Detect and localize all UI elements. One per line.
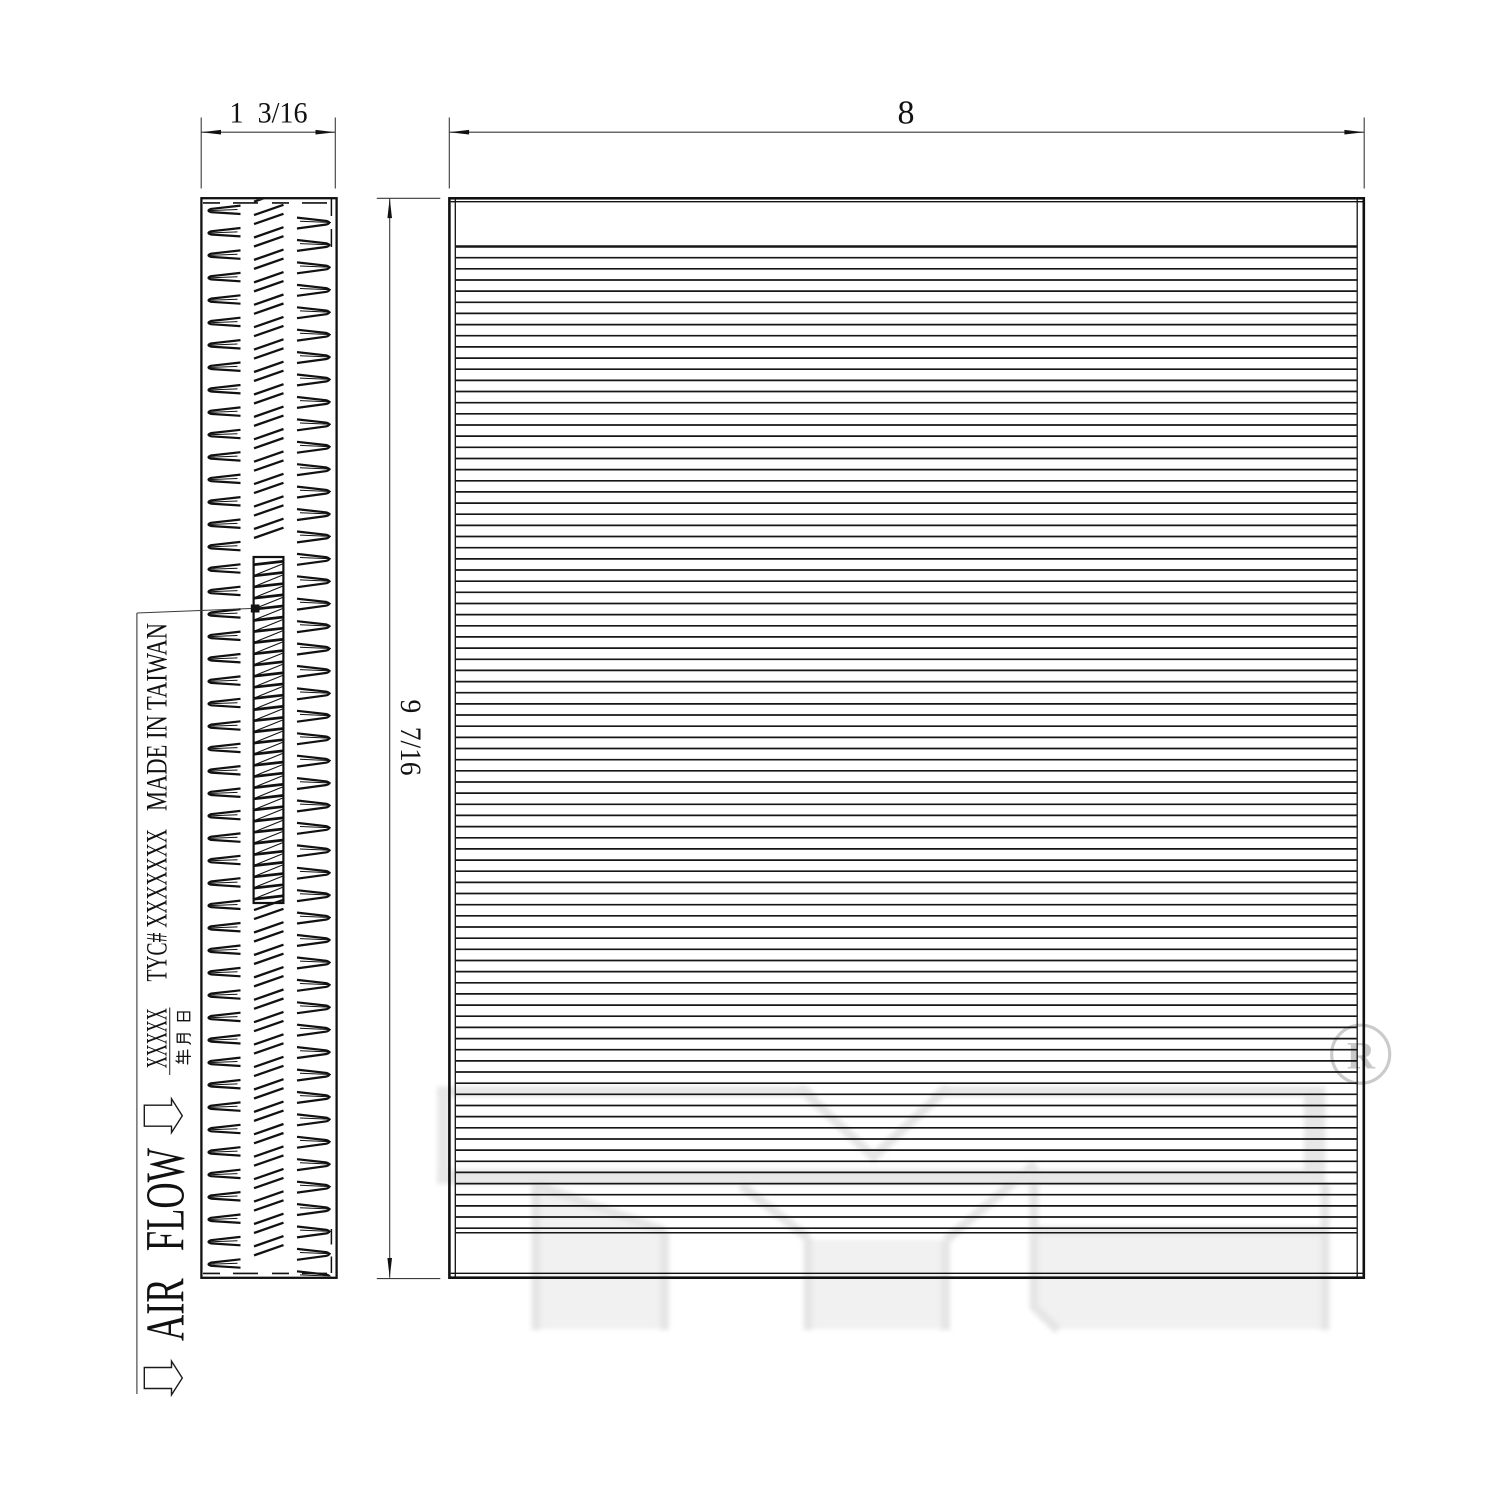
svg-text:MADE IN TAIWAN: MADE IN TAIWAN	[141, 623, 174, 811]
svg-text:TYC# XXXXXXX: TYC# XXXXXXX	[141, 829, 174, 982]
svg-text:1 3/16: 1 3/16	[230, 97, 308, 130]
svg-text:XXXXX: XXXXX	[141, 1008, 174, 1068]
svg-text:AIR FLOW: AIR FLOW	[135, 1148, 196, 1341]
svg-text:8: 8	[898, 95, 915, 132]
svg-text:9 7/16: 9 7/16	[394, 700, 427, 776]
